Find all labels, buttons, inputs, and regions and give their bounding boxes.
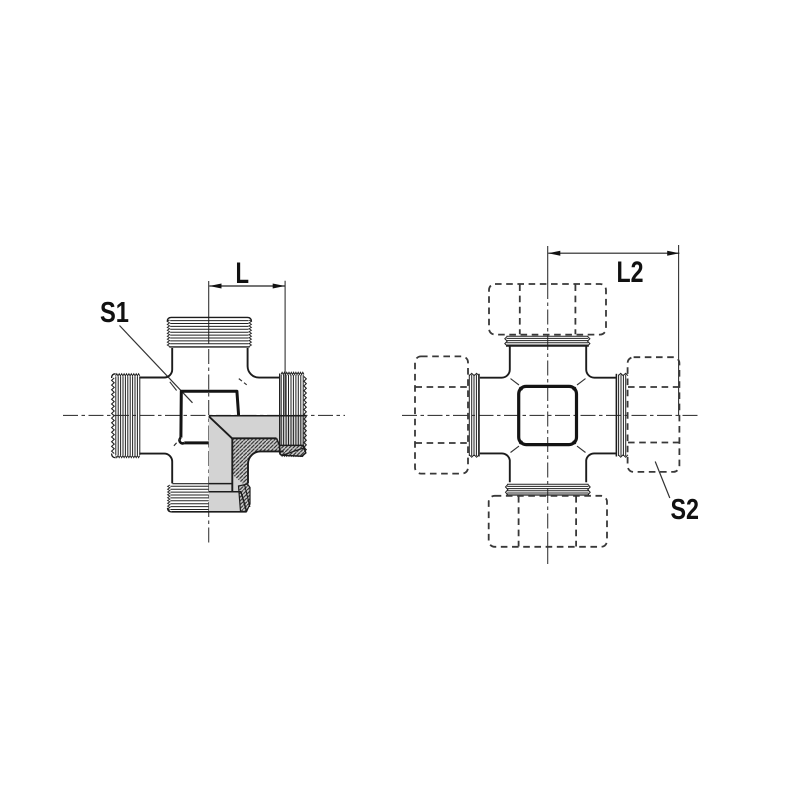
svg-text:S2: S2 xyxy=(671,494,700,526)
svg-text:L: L xyxy=(236,257,250,290)
svg-text:L2: L2 xyxy=(617,256,644,289)
svg-text:S1: S1 xyxy=(100,297,129,329)
